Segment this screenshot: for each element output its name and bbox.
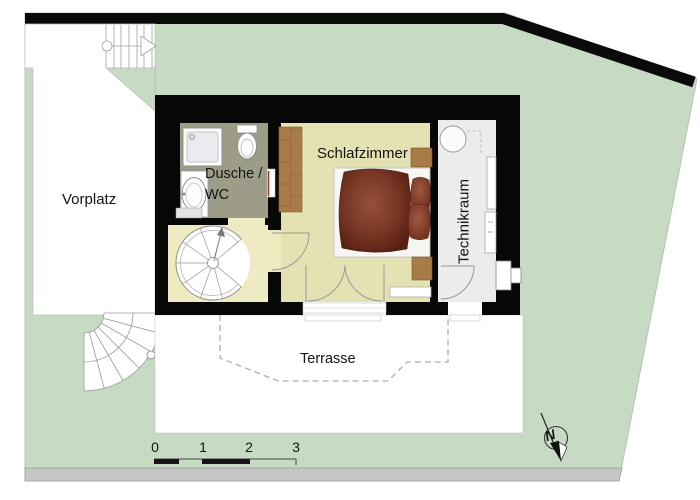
technical-room-label: Technikraum bbox=[456, 176, 473, 268]
spiral-staircase bbox=[176, 226, 250, 300]
bed bbox=[334, 168, 431, 257]
scale-label-3: 3 bbox=[289, 439, 303, 455]
bathroom-label: Dusche / WC bbox=[205, 164, 262, 206]
nightstand-bottom bbox=[412, 257, 432, 280]
toilet bbox=[237, 125, 257, 159]
nightstand-top bbox=[411, 148, 432, 167]
bathroom-door-threshold bbox=[228, 218, 265, 225]
technical-door-opening bbox=[448, 302, 482, 315]
bathroom-label-line2: WC bbox=[205, 185, 262, 206]
wall-unit bbox=[487, 157, 496, 209]
terrace-label: Terrasse bbox=[300, 351, 356, 367]
technical-door-step bbox=[450, 315, 480, 321]
duvet bbox=[339, 169, 411, 252]
shower-drain bbox=[189, 134, 194, 139]
handrail-post bbox=[147, 351, 155, 359]
floor-plan-drawing bbox=[0, 0, 700, 500]
scale-label-0: 0 bbox=[148, 439, 162, 455]
pillow-bottom bbox=[408, 204, 430, 240]
terrace-step bbox=[305, 315, 381, 321]
bedroom-wardrobe bbox=[279, 127, 302, 212]
bathroom-cabinet bbox=[176, 208, 202, 218]
spiral-hub bbox=[208, 258, 219, 269]
stair-start-marker bbox=[102, 41, 112, 51]
wall-niche bbox=[267, 169, 275, 197]
terrace-ground bbox=[155, 315, 523, 433]
floor-vent bbox=[390, 287, 431, 297]
vent-unit bbox=[485, 212, 496, 253]
shower bbox=[183, 128, 222, 166]
floor-plan-page: Vorplatz Dusche / WC Schlafzimmer Techni… bbox=[0, 0, 700, 500]
bedroom-doorway bbox=[268, 230, 281, 272]
scale-label-1: 1 bbox=[196, 439, 210, 455]
bedroom-label: Schlafzimmer bbox=[317, 145, 408, 162]
scale-label-2: 2 bbox=[242, 439, 256, 455]
vorplatz-label: Vorplatz bbox=[62, 191, 116, 208]
road-strip bbox=[25, 468, 622, 481]
bathroom-label-line1: Dusche / bbox=[205, 164, 262, 185]
